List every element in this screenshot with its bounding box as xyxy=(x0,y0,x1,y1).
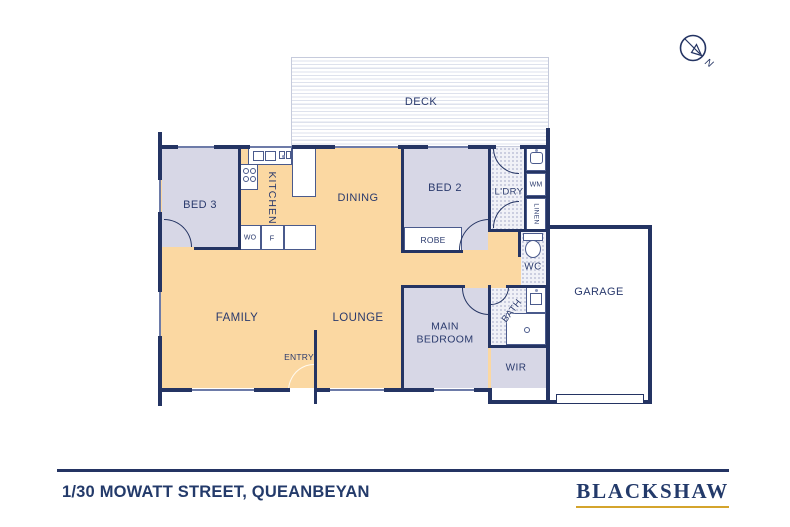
family-label: FAMILY xyxy=(216,312,258,324)
dining-label: DINING xyxy=(338,192,379,204)
window xyxy=(434,389,474,391)
wm-label: WM xyxy=(530,182,543,189)
window xyxy=(178,146,214,148)
window xyxy=(250,146,292,148)
property-address: 1/30 MOWATT STREET, QUEANBEYAN xyxy=(62,483,370,502)
wall-segment xyxy=(401,147,404,253)
footer-divider xyxy=(57,469,729,472)
wall-segment xyxy=(518,229,521,257)
wall-segment xyxy=(158,388,192,392)
window xyxy=(192,389,254,391)
wall-segment xyxy=(488,285,491,347)
wall-segment xyxy=(506,285,550,288)
kitchen-sink-bowl xyxy=(265,151,276,161)
wall-segment xyxy=(546,145,550,229)
main-bedroom-label-line2: BEDROOM xyxy=(416,333,473,346)
pantry-bench xyxy=(292,147,316,197)
compass-icon xyxy=(672,28,724,80)
floorplan-page: DECK BED 3 KITCHEN DINING BED 2 L'DRY WM… xyxy=(0,0,790,527)
cooktop xyxy=(240,164,258,190)
wall-segment xyxy=(488,345,550,348)
lounge-label: LOUNGE xyxy=(333,312,384,324)
fridge-label: F xyxy=(270,234,275,243)
garage-walls xyxy=(546,225,652,404)
north-compass: N xyxy=(672,28,724,80)
wall-segment xyxy=(468,145,496,149)
wall-segment xyxy=(401,288,404,388)
agency-logo: BLACKSHAW xyxy=(576,479,729,508)
window xyxy=(159,292,161,336)
wall-segment xyxy=(158,212,162,292)
window xyxy=(335,146,398,148)
wall-segment xyxy=(238,147,241,250)
wall-segment xyxy=(488,147,491,232)
wall-segment xyxy=(524,171,546,173)
wall-oven-label: WO xyxy=(244,235,256,242)
wall-segment xyxy=(314,330,317,404)
wir-label: WIR xyxy=(506,363,527,374)
bed3-label: BED 3 xyxy=(183,199,217,211)
wall-segment xyxy=(401,285,465,288)
wall-segment xyxy=(254,388,290,392)
garage-label: GARAGE xyxy=(574,286,623,298)
kitchen-appliance xyxy=(279,151,285,159)
wc-label: WC xyxy=(524,262,541,273)
laundry-label: L'DRY xyxy=(495,187,524,198)
window xyxy=(428,146,468,148)
wall-segment xyxy=(158,336,162,406)
laundry-tub xyxy=(526,147,546,171)
entry-label: ENTRY xyxy=(284,352,314,362)
window xyxy=(159,180,161,212)
main-bedroom-label: MAIN BEDROOM xyxy=(416,320,473,345)
kitchen-counter xyxy=(248,147,292,165)
deck-label: DECK xyxy=(405,96,437,108)
wall-segment xyxy=(488,400,550,404)
bath-vanity xyxy=(526,287,546,313)
kitchen-appliance xyxy=(286,151,291,159)
kitchen-sink-bowl xyxy=(253,151,264,161)
bed2-label: BED 2 xyxy=(428,182,462,194)
wall-segment xyxy=(401,250,463,253)
wall-segment xyxy=(158,132,162,180)
kitchen-bench xyxy=(284,225,316,250)
wall-segment xyxy=(524,147,526,232)
linen-label: LINEN xyxy=(533,203,540,224)
wall-segment xyxy=(524,196,546,198)
wall-segment xyxy=(214,145,250,149)
wall-segment xyxy=(292,145,335,149)
main-bedroom-label-line1: MAIN xyxy=(416,320,473,333)
window xyxy=(330,389,384,391)
garage-door xyxy=(556,394,644,404)
toilet-bowl xyxy=(525,240,541,258)
robe-label: ROBE xyxy=(421,235,446,245)
wall-segment xyxy=(384,388,434,392)
kitchen-label: KITCHEN xyxy=(266,171,278,224)
wall-segment xyxy=(194,247,241,250)
